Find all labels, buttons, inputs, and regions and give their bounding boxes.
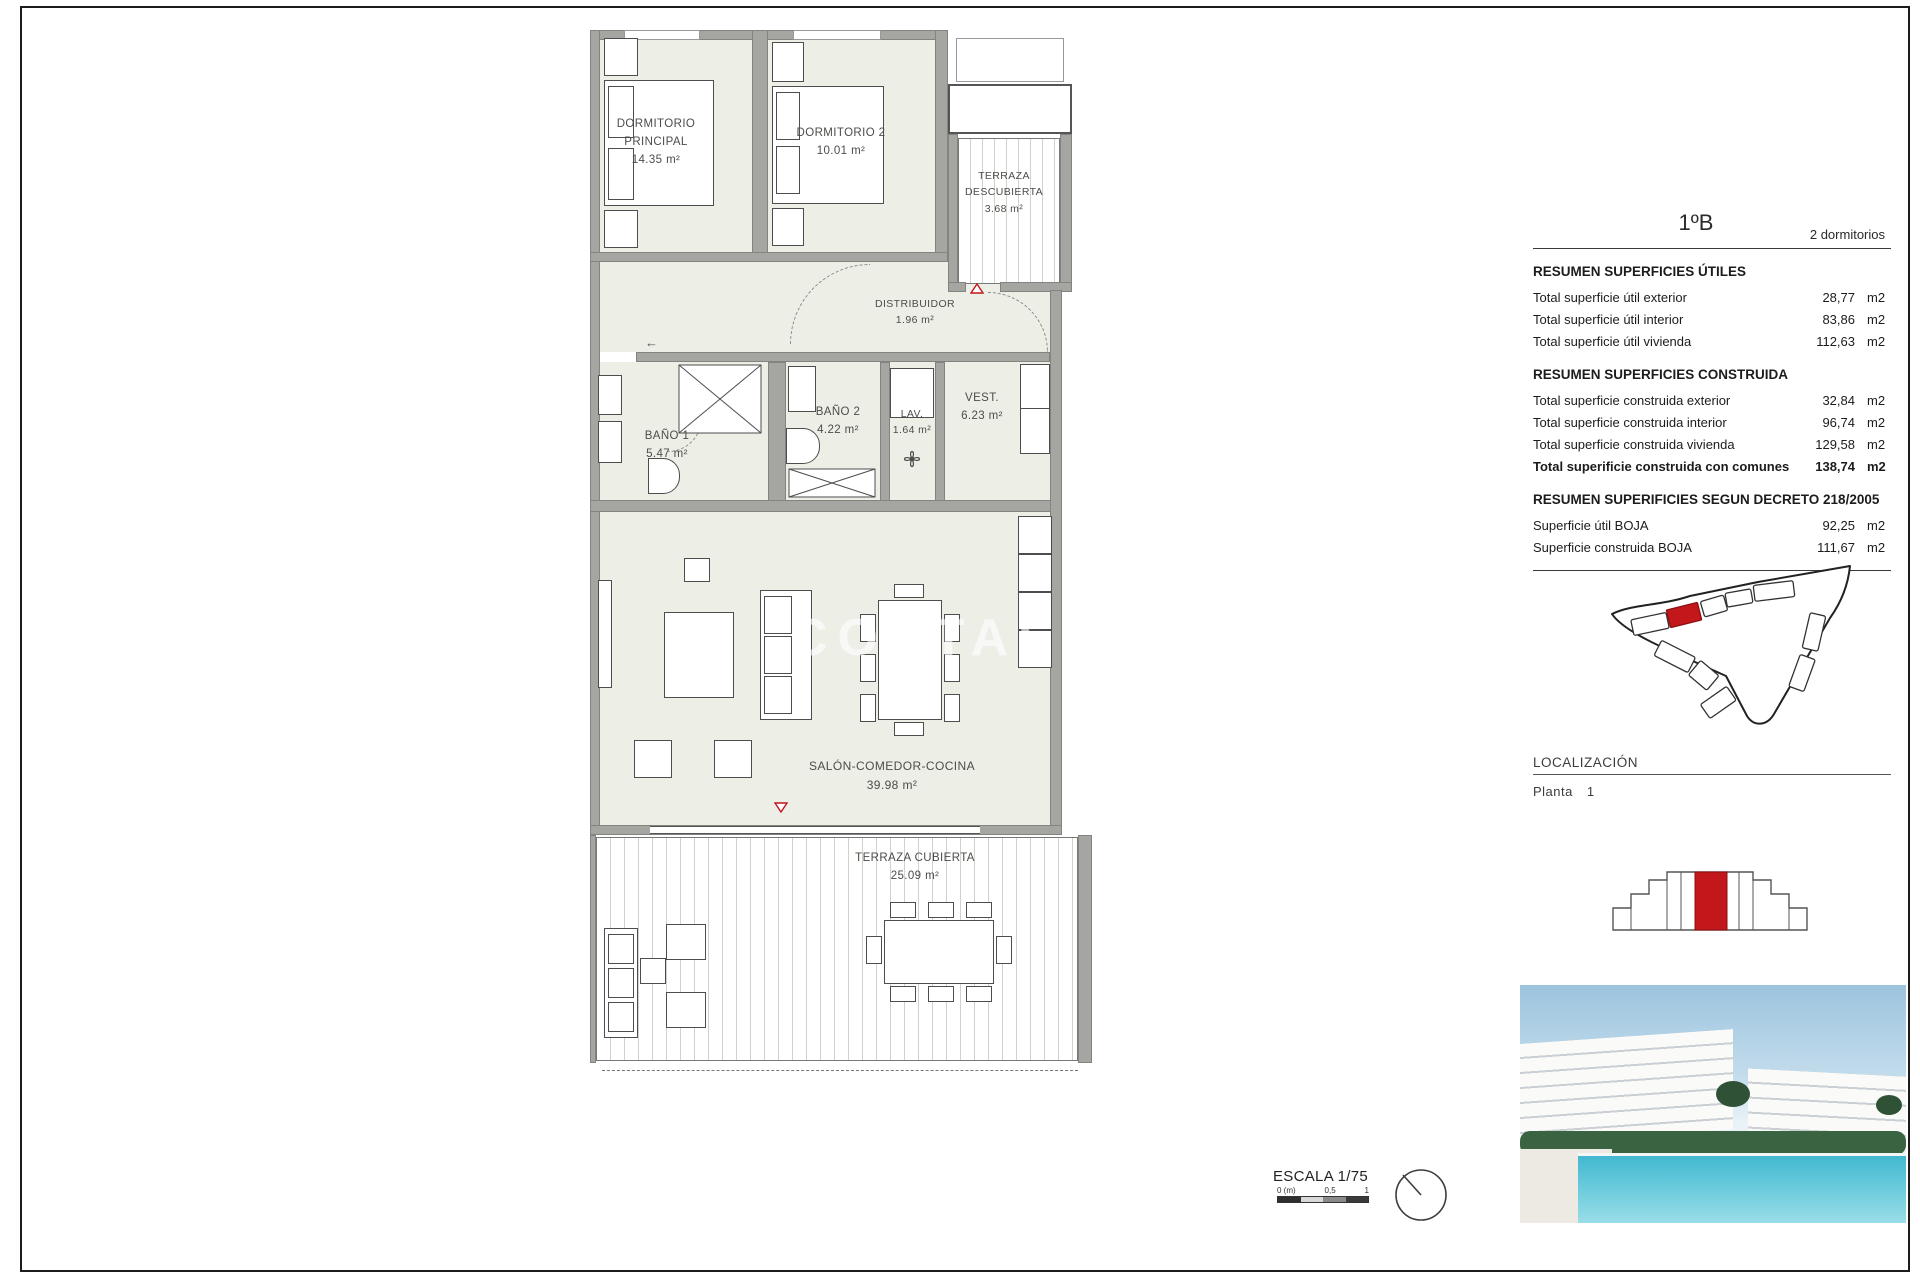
window-salon <box>598 580 612 688</box>
label-terraza-cubierta: TERRAZA CUBIERTA 25.09 m² <box>830 850 1000 886</box>
chair <box>996 936 1012 964</box>
scale-bar <box>1277 1196 1369 1203</box>
photo-pool-edge <box>1578 1153 1906 1156</box>
project-photo <box>1520 985 1906 1223</box>
plan-sheet: ← <box>0 0 1920 1280</box>
label-bano-2: BAÑO 2 4.22 m² <box>793 404 883 440</box>
terrace-glass-line <box>602 1070 1078 1071</box>
shower-bano-2 <box>788 468 876 498</box>
floor-indicator: Planta1 <box>1533 784 1891 799</box>
table-row: Total superficie útil exterior 28,77 m2 <box>1533 286 1891 308</box>
wall <box>590 835 596 1063</box>
ottoman <box>714 740 752 778</box>
chair <box>928 986 954 1002</box>
chair <box>890 986 916 1002</box>
window-dormitorio-2 <box>793 30 881 40</box>
building-block <box>1700 686 1736 718</box>
closet <box>598 421 622 463</box>
label-dormitorio-principal: DORMITORIO PRINCIPAL 14.35 m² <box>591 116 721 169</box>
sofa-cushion <box>764 596 792 634</box>
nightstand <box>772 42 804 82</box>
unit-type: 2 dormitorios <box>1810 227 1885 242</box>
common-core-upper-box <box>956 38 1064 82</box>
wall <box>590 252 948 262</box>
label-terraza-descubierta: TERRAZA DESCUBIERTA 3.68 m² <box>945 168 1063 217</box>
sliding-door-opening <box>650 826 980 834</box>
armchair <box>666 924 706 960</box>
sofa-cushion <box>764 636 792 674</box>
photo-pool <box>1578 1153 1906 1223</box>
armchair <box>666 992 706 1028</box>
label-lav: LAV. 1.64 m² <box>882 406 942 439</box>
label-salon: SALÓN-COMEDOR-COCINA 39.98 m² <box>769 757 1015 794</box>
kitchen-unit <box>1018 554 1052 592</box>
table-row: Total superficie construida exterior 32,… <box>1533 389 1891 411</box>
chair <box>866 936 882 964</box>
photo-palm <box>1876 1095 1902 1115</box>
rug <box>664 612 734 698</box>
scale-block: ESCALA 1/75 0 (m) 0,5 1 <box>1273 1168 1393 1203</box>
closet-vestidor <box>1020 364 1050 454</box>
section-title-decreto: RESUMEN SUPERIFICIES SEGUN DECRETO 218/2… <box>1533 492 1891 507</box>
chair <box>890 902 916 918</box>
nightstand <box>772 208 804 246</box>
dining-table <box>878 600 942 720</box>
table-row-total: Total superificie construida con comunes… <box>1533 455 1891 477</box>
unit-title-bar: 1ºB 2 dormitorios <box>1533 210 1891 244</box>
nightstand <box>604 38 638 76</box>
surface-summary: 1ºB 2 dormitorios RESUMEN SUPERFICIES ÚT… <box>1533 210 1891 571</box>
table-row: Total superficie construida interior 96,… <box>1533 411 1891 433</box>
side-table <box>684 558 710 582</box>
table-row: Total superficie construida vivienda 129… <box>1533 433 1891 455</box>
photo-building-left <box>1520 1029 1733 1145</box>
section-title-construida: RESUMEN SUPERFICIES CONSTRUIDA <box>1533 367 1891 382</box>
table-row: Total superficie útil interior 83,86 m2 <box>1533 308 1891 330</box>
localizacion-block: LOCALIZACIÓN Planta1 <box>1533 755 1891 799</box>
highlighted-unit <box>1695 872 1727 930</box>
wall <box>590 500 1062 512</box>
section-title-utiles: RESUMEN SUPERFICIES ÚTILES <box>1533 264 1891 279</box>
kitchen-unit <box>1018 516 1052 554</box>
table-row: Superficie útil BOJA 92,25 m2 <box>1533 514 1891 536</box>
wall <box>1078 835 1092 1063</box>
title-rule <box>1533 248 1891 249</box>
unit-code: 1ºB <box>1651 210 1741 236</box>
label-dormitorio-2: DORMITORIO 2 10.01 m² <box>766 125 916 161</box>
wall <box>636 352 1050 362</box>
entrance-marker-icon <box>970 283 984 294</box>
fan-icon <box>898 445 926 473</box>
scale-label: ESCALA 1/75 <box>1273 1168 1393 1185</box>
closet-divider <box>1020 408 1050 409</box>
table-row: Total superficie útil vivienda 112,63 m2 <box>1533 330 1891 352</box>
north-compass-icon <box>1392 1166 1450 1224</box>
floor-plan: ← <box>590 30 1095 1075</box>
building-elevation-diagram <box>1605 850 1815 945</box>
left-arrow-icon: ← <box>645 335 658 350</box>
label-bano-1: BAÑO 1 5.47 m² <box>627 428 707 464</box>
kitchen-unit <box>1018 630 1052 668</box>
chair <box>894 722 924 736</box>
sofa-cushion <box>608 1002 634 1032</box>
shower-bano-1 <box>678 364 762 434</box>
coffee-table <box>640 958 666 984</box>
common-core-box <box>948 84 1072 134</box>
chair <box>928 902 954 918</box>
site-plan-diagram <box>1598 552 1888 747</box>
chair <box>944 614 960 642</box>
chair <box>944 694 960 722</box>
outdoor-dining-table <box>884 920 994 984</box>
scale-ticks: 0 (m) 0,5 1 <box>1277 1186 1369 1195</box>
wall <box>935 30 948 262</box>
sofa-cushion <box>764 676 792 714</box>
chair <box>966 902 992 918</box>
chair <box>860 694 876 722</box>
localizacion-title: LOCALIZACIÓN <box>1533 755 1891 775</box>
kitchen-unit <box>1018 592 1052 630</box>
wall <box>768 362 786 510</box>
chair <box>860 654 876 682</box>
sofa-cushion <box>608 968 634 998</box>
chair <box>966 986 992 1002</box>
label-vest: VEST. 6.23 m² <box>942 390 1022 426</box>
label-distribuidor: DISTRIBUIDOR 1.96 m² <box>852 296 978 329</box>
chair <box>894 584 924 598</box>
chair <box>860 614 876 642</box>
ottoman <box>634 740 672 778</box>
level-marker-icon <box>774 802 788 813</box>
closet <box>598 375 622 415</box>
nightstand <box>604 210 638 248</box>
photo-palm <box>1716 1081 1750 1107</box>
sofa-cushion <box>608 934 634 964</box>
wall <box>948 282 966 292</box>
chair <box>944 654 960 682</box>
